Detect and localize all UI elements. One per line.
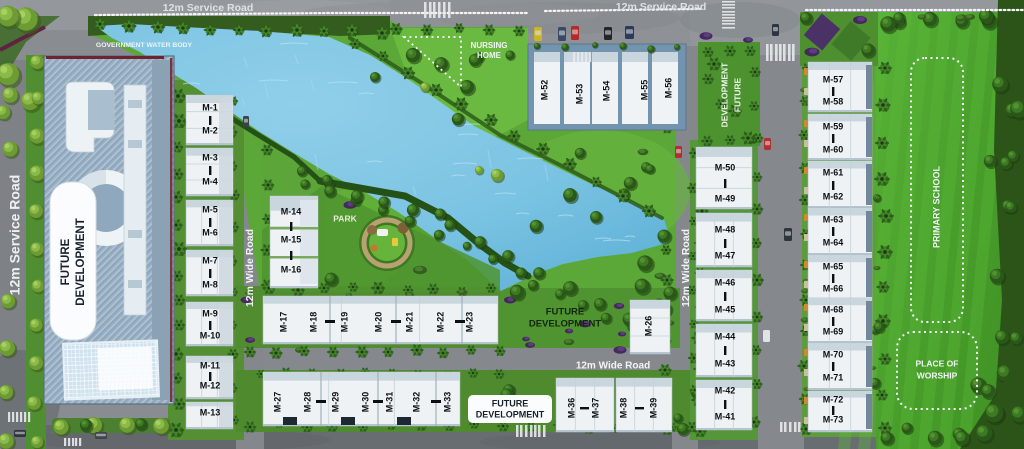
- svg-text:FUTURE: FUTURE: [546, 307, 585, 318]
- svg-text:12m Wide Road: 12m Wide Road: [244, 229, 256, 307]
- svg-text:M-59: M-59: [823, 121, 844, 131]
- svg-text:M-69: M-69: [823, 326, 844, 336]
- svg-text:PLACE OF: PLACE OF: [916, 358, 959, 368]
- svg-text:M-10: M-10: [200, 330, 221, 340]
- svg-text:M-13: M-13: [200, 407, 221, 417]
- svg-text:M-55: M-55: [639, 80, 649, 101]
- svg-text:M-31: M-31: [384, 392, 394, 413]
- svg-text:M-54: M-54: [601, 81, 611, 102]
- svg-text:M-1: M-1: [202, 102, 218, 112]
- svg-text:M-19: M-19: [339, 312, 349, 333]
- svg-text:M-18: M-18: [308, 312, 318, 333]
- svg-text:M-5: M-5: [202, 204, 218, 214]
- svg-text:M-63: M-63: [823, 214, 844, 224]
- svg-text:M-6: M-6: [202, 227, 218, 237]
- svg-text:HOME: HOME: [477, 51, 502, 60]
- svg-text:M-60: M-60: [823, 144, 844, 154]
- svg-text:DEVELOPMENT: DEVELOPMENT: [75, 218, 87, 306]
- svg-text:M-47: M-47: [715, 250, 736, 260]
- svg-text:M-29: M-29: [330, 392, 340, 413]
- svg-text:M-48: M-48: [715, 224, 736, 234]
- svg-text:M-30: M-30: [360, 392, 370, 413]
- svg-text:M-52: M-52: [539, 80, 549, 101]
- svg-text:M-37: M-37: [590, 398, 600, 419]
- svg-text:M-49: M-49: [715, 193, 736, 203]
- svg-text:M-2: M-2: [202, 125, 218, 135]
- svg-text:M-23: M-23: [464, 312, 474, 333]
- svg-text:FUTURE: FUTURE: [732, 77, 742, 112]
- svg-text:M-28: M-28: [302, 392, 312, 413]
- svg-text:M-53: M-53: [574, 84, 584, 105]
- svg-text:M-39: M-39: [648, 398, 658, 419]
- svg-text:M-16: M-16: [281, 264, 302, 274]
- svg-text:DEVELOPMENT: DEVELOPMENT: [719, 62, 729, 128]
- svg-text:M-11: M-11: [200, 360, 220, 370]
- svg-text:M-70: M-70: [823, 349, 844, 359]
- svg-text:M-36: M-36: [566, 398, 576, 419]
- svg-text:M-71: M-71: [823, 372, 844, 382]
- svg-text:M-7: M-7: [202, 255, 218, 265]
- svg-text:12m Wide Road: 12m Wide Road: [680, 229, 692, 307]
- svg-text:FUTURE: FUTURE: [492, 398, 529, 408]
- svg-text:12m Service Road: 12m Service Road: [7, 175, 23, 296]
- svg-text:DEVELOPMENT: DEVELOPMENT: [476, 409, 545, 419]
- svg-text:GOVERNMENT WATER BODY: GOVERNMENT WATER BODY: [96, 42, 193, 49]
- svg-text:M-15: M-15: [281, 234, 302, 244]
- svg-text:M-32: M-32: [411, 392, 421, 413]
- svg-text:M-26: M-26: [643, 316, 653, 337]
- svg-text:M-57: M-57: [823, 74, 844, 84]
- svg-text:M-20: M-20: [373, 312, 383, 333]
- svg-text:M-58: M-58: [823, 96, 844, 106]
- svg-text:M-33: M-33: [442, 392, 452, 413]
- svg-text:DEVELOPMENT: DEVELOPMENT: [529, 319, 602, 330]
- svg-text:M-4: M-4: [202, 176, 218, 186]
- svg-text:M-12: M-12: [200, 380, 221, 390]
- svg-text:M-62: M-62: [823, 191, 844, 201]
- svg-text:M-56: M-56: [663, 78, 673, 99]
- svg-text:M-68: M-68: [823, 304, 844, 314]
- svg-text:M-46: M-46: [715, 277, 736, 287]
- svg-text:12m Service Road: 12m Service Road: [163, 2, 253, 14]
- svg-text:M-44: M-44: [715, 331, 736, 341]
- svg-text:12m Service Road: 12m Service Road: [616, 1, 706, 13]
- svg-text:M-43: M-43: [715, 358, 736, 368]
- svg-text:M-64: M-64: [823, 237, 844, 247]
- svg-text:M-42: M-42: [715, 385, 736, 395]
- svg-text:M-41: M-41: [715, 411, 736, 421]
- svg-text:WORSHIP: WORSHIP: [917, 370, 958, 380]
- svg-text:M-14: M-14: [281, 206, 302, 216]
- svg-text:M-50: M-50: [715, 162, 736, 172]
- svg-text:PARK: PARK: [333, 213, 357, 223]
- svg-text:M-21: M-21: [404, 312, 414, 333]
- svg-text:M-8: M-8: [202, 279, 218, 289]
- svg-text:M-3: M-3: [202, 152, 218, 162]
- svg-text:M-27: M-27: [272, 392, 282, 413]
- svg-text:M-61: M-61: [823, 167, 844, 177]
- svg-text:M-65: M-65: [823, 261, 844, 271]
- svg-text:M-9: M-9: [202, 308, 218, 318]
- svg-text:PRIMARY SCHOOL: PRIMARY SCHOOL: [931, 165, 941, 248]
- svg-text:M-17: M-17: [278, 312, 288, 333]
- svg-text:M-22: M-22: [435, 312, 445, 333]
- svg-text:M-38: M-38: [618, 398, 628, 419]
- svg-text:FUTURE: FUTURE: [60, 238, 72, 285]
- svg-text:12m Wide Road: 12m Wide Road: [576, 361, 650, 372]
- svg-text:M-72: M-72: [823, 394, 844, 404]
- svg-text:M-66: M-66: [823, 283, 844, 293]
- svg-text:M-73: M-73: [823, 414, 844, 424]
- svg-text:M-45: M-45: [715, 304, 736, 314]
- svg-text:NURSING: NURSING: [471, 41, 508, 50]
